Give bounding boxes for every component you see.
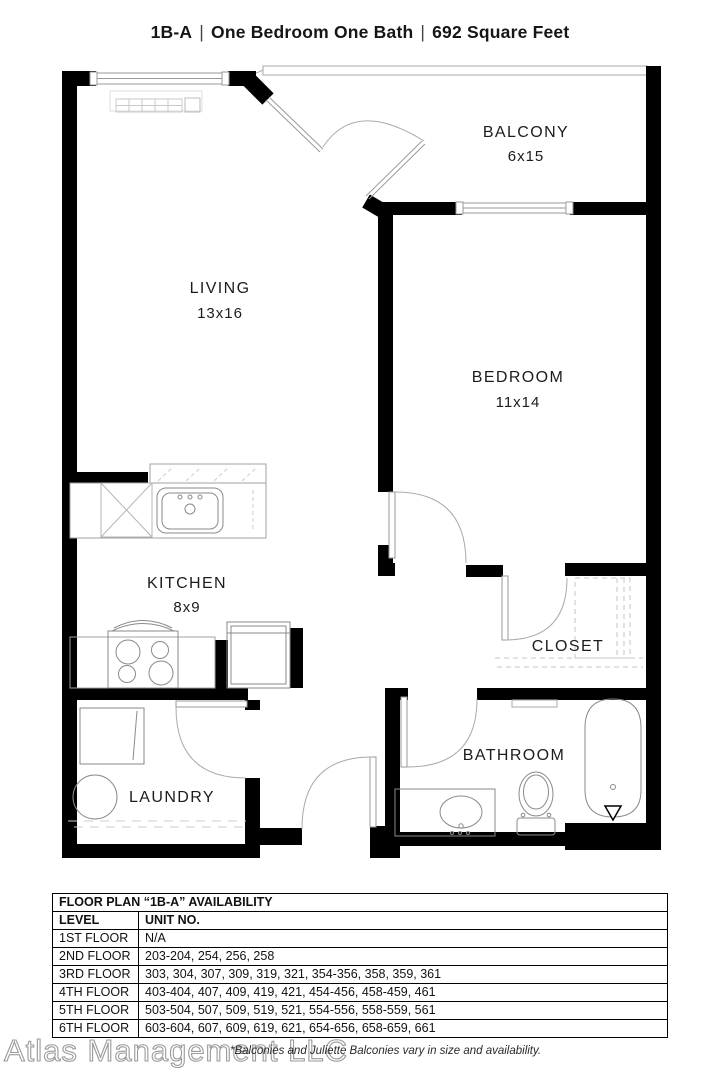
room-label-bathroom: BATHROOM [463, 747, 565, 764]
units-cell: 303, 304, 307, 309, 319, 321, 354-356, 3… [139, 966, 668, 984]
availability-row: 1ST FLOOR N/A [53, 930, 668, 948]
column-header-level: LEVEL [53, 912, 139, 930]
units-cell: 203-204, 254, 256, 258 [139, 948, 668, 966]
availability-row: 2ND FLOOR 203-204, 254, 256, 258 [53, 948, 668, 966]
room-label-closet: CLOSET [532, 638, 604, 655]
units-cell: 403-404, 407, 409, 419, 421, 454-456, 45… [139, 984, 668, 1002]
bathroom-fixtures [395, 699, 641, 836]
vanity-sink [395, 789, 495, 836]
room-label-balcony: BALCONY 6x15 [483, 124, 569, 165]
stove [70, 621, 215, 689]
availability-row: 4TH FLOOR 403-404, 407, 409, 419, 421, 4… [53, 984, 668, 1002]
level-cell: 5TH FLOOR [53, 1002, 139, 1020]
balcony-disclaimer-note: *Balconies and Juliette Balconies vary i… [230, 1045, 541, 1057]
svg-text:11x14: 11x14 [496, 394, 541, 411]
svg-text:6x15: 6x15 [508, 148, 545, 165]
laundry-fixtures [68, 708, 246, 827]
level-cell: 4TH FLOOR [53, 984, 139, 1002]
bedroom-door [389, 492, 466, 563]
svg-text:BEDROOM: BEDROOM [472, 369, 564, 386]
angled-glass-wall [266, 97, 323, 152]
room-label-living: LIVING 13x16 [190, 280, 251, 322]
bedroom-window [456, 202, 573, 214]
room-label-kitchen: KITCHEN 8x9 [147, 575, 227, 616]
tub-drain-arrow [605, 806, 621, 820]
living-window [90, 72, 229, 85]
room-label-bedroom: BEDROOM 11x14 [472, 369, 564, 411]
svg-text:LIVING: LIVING [190, 280, 251, 297]
dryer [73, 775, 117, 819]
closet-door [502, 576, 567, 640]
units-cell: N/A [139, 930, 668, 948]
balcony-door [323, 121, 425, 199]
svg-text:BALCONY: BALCONY [483, 124, 569, 141]
windows [90, 72, 573, 214]
washer [80, 708, 144, 764]
svg-text:8x9: 8x9 [173, 599, 200, 616]
floor-plan-drawing: LIVING 13x16 BALCONY 6x15 BEDROOM 11x14 … [0, 0, 720, 885]
units-cell: 503-504, 507, 509, 519, 521, 554-556, 55… [139, 1002, 668, 1020]
availability-row: 5TH FLOOR 503-504, 507, 509, 519, 521, 5… [53, 1002, 668, 1020]
laundry-threshold [68, 821, 246, 827]
svg-text:13x16: 13x16 [197, 305, 243, 322]
table-header-row: LEVEL UNIT NO. [53, 912, 668, 930]
refrigerator [227, 622, 290, 688]
mirror-cabinet [512, 700, 557, 707]
floor-plan-page: { "title": { "unit": "1B-A", "sep": "|",… [0, 0, 720, 1080]
table-title-row: FLOOR PLAN “1B-A” AVAILABILITY [53, 894, 668, 912]
level-cell: 1ST FLOOR [53, 930, 139, 948]
room-label-laundry: LAUNDRY [129, 789, 215, 806]
laundry-door [176, 701, 247, 778]
svg-text:KITCHEN: KITCHEN [147, 575, 227, 592]
toilet [517, 772, 555, 835]
table-title: FLOOR PLAN “1B-A” AVAILABILITY [53, 894, 668, 912]
availability-row: 3RD FLOOR 303, 304, 307, 309, 319, 321, … [53, 966, 668, 984]
hvac-unit [110, 91, 202, 112]
walls [62, 66, 661, 858]
entry-door [302, 757, 376, 829]
balcony-railing [241, 66, 647, 80]
level-cell: 2ND FLOOR [53, 948, 139, 966]
bathtub [585, 699, 641, 820]
level-cell: 3RD FLOOR [53, 966, 139, 984]
availability-table: FLOOR PLAN “1B-A” AVAILABILITY LEVEL UNI… [52, 893, 668, 1038]
column-header-units: UNIT NO. [139, 912, 668, 930]
